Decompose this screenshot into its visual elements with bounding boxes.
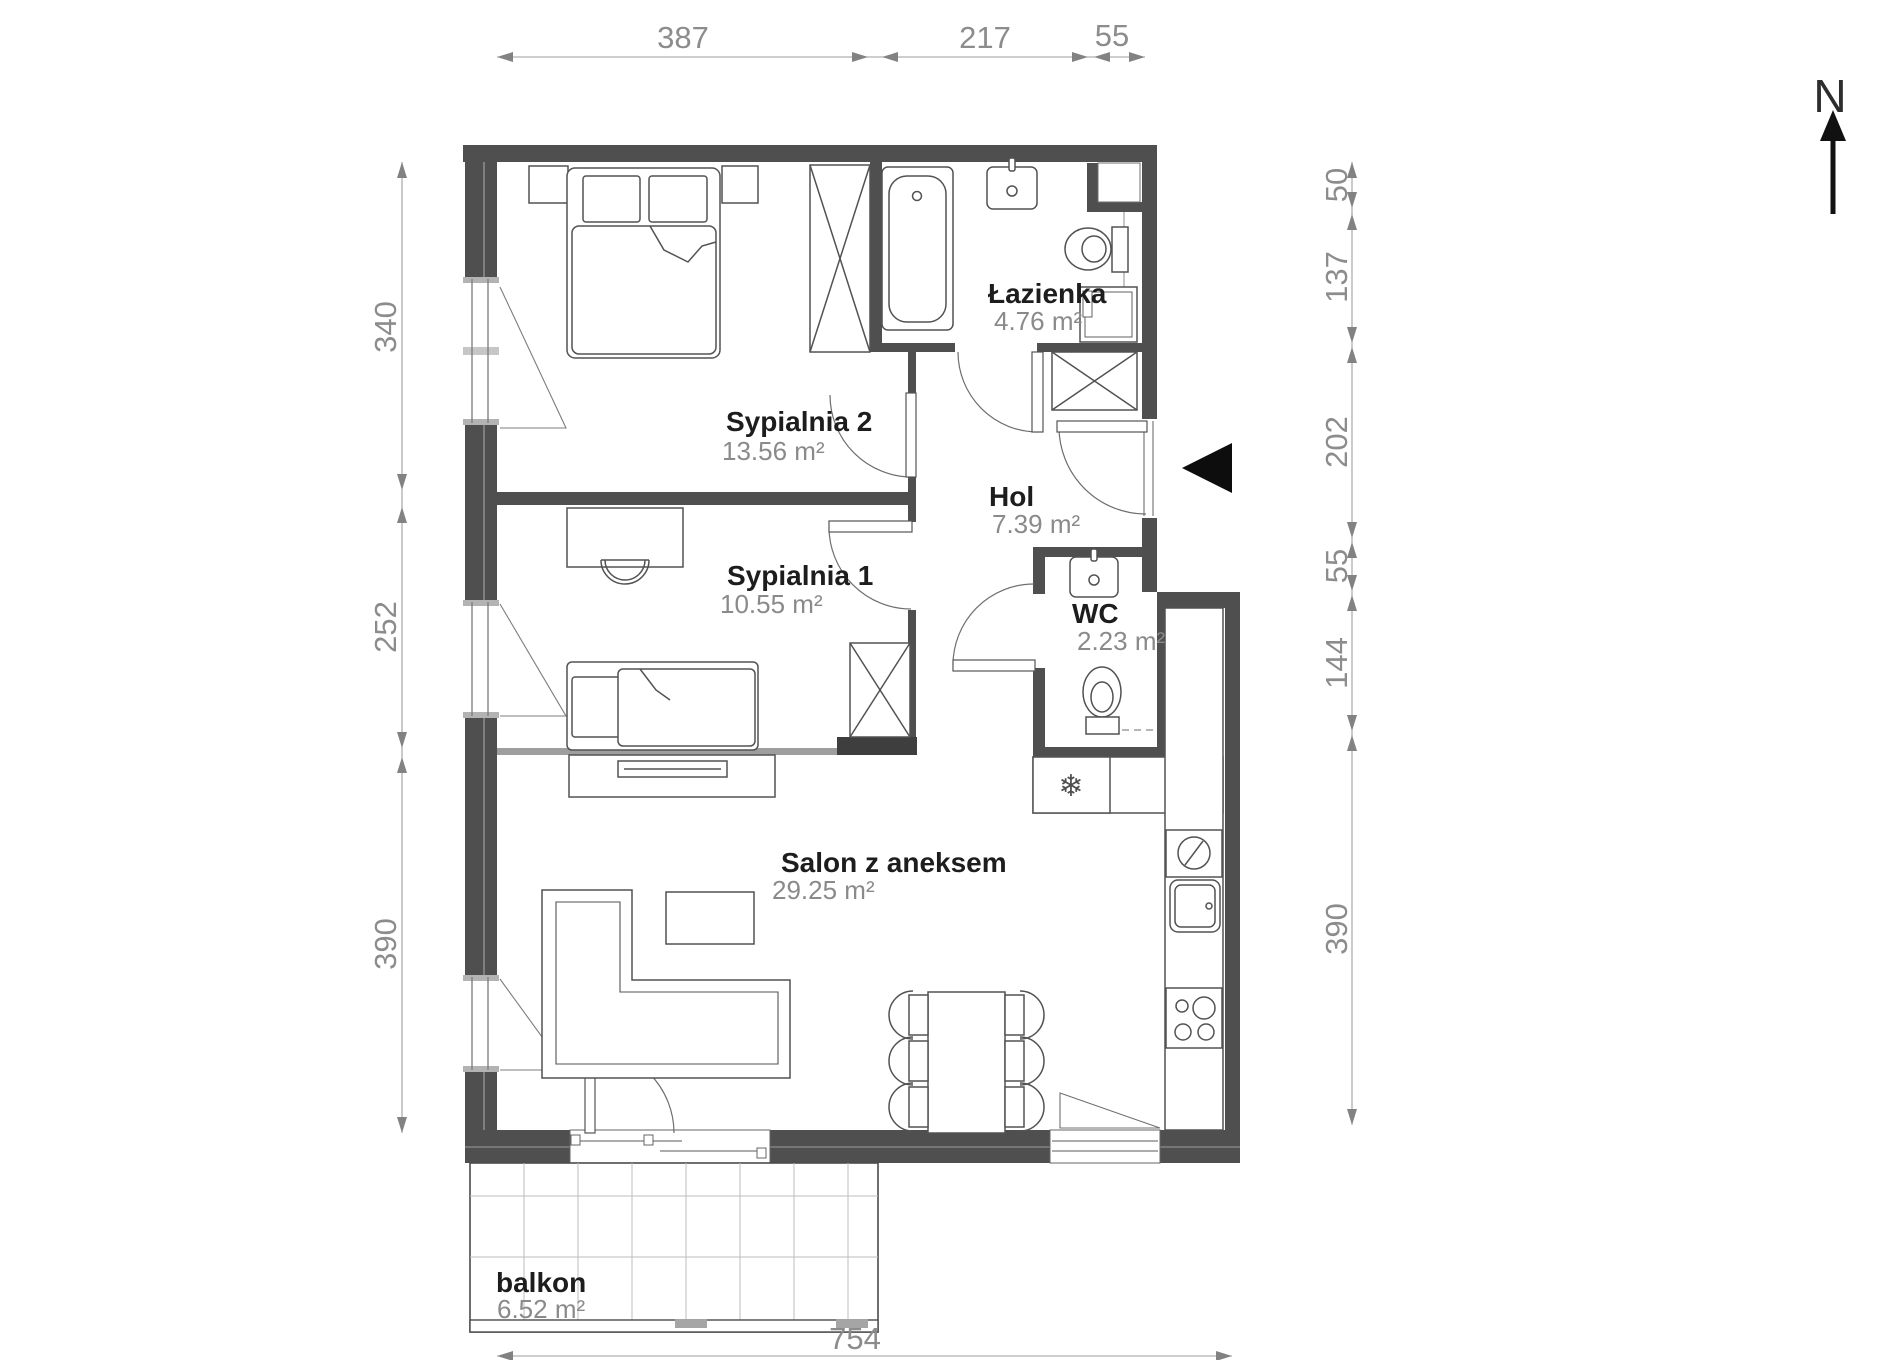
coffee-table (666, 892, 754, 944)
room-area-sypialnia-1: 10.55 m² (720, 589, 823, 619)
sink-drain (1089, 575, 1099, 585)
toilet-tank (1086, 717, 1119, 734)
room-label-salon: Salon z aneksem (781, 847, 1007, 878)
dining-chair (1005, 1037, 1044, 1085)
dining-chair (889, 991, 928, 1039)
room-label-wc: WC (1072, 598, 1119, 629)
room-area-wc: 2.23 m² (1077, 626, 1165, 656)
furniture-salon (542, 755, 1044, 1133)
bathroom-sink (987, 158, 1037, 209)
door-entrance (1057, 419, 1159, 518)
room-label-hol: Hol (989, 481, 1034, 512)
north-indicator: N (1813, 70, 1846, 214)
balcony-door-window (570, 1130, 770, 1163)
wall-shaft-left (1087, 163, 1098, 205)
svg-text:202: 202 (1319, 416, 1354, 468)
wall-bath-bottom-b (1037, 343, 1142, 352)
pillow (583, 176, 640, 222)
room-area-lazienka: 4.76 m² (994, 306, 1082, 336)
door-leaf (1057, 421, 1147, 432)
railing-bracket (675, 1319, 707, 1328)
room-label-sypialnia-1: Sypialnia 1 (727, 560, 873, 591)
wc-toilet (1083, 667, 1121, 734)
snowflake-icon: ❄ (1058, 770, 1083, 803)
wardrobe (810, 165, 870, 352)
door-handle (571, 1135, 580, 1145)
bathtub (882, 167, 953, 330)
door-handle (757, 1148, 766, 1158)
desk (567, 508, 683, 567)
wall-syp2-hol-b (908, 477, 916, 492)
wardrobe (850, 643, 910, 737)
dimension-top: 387 217 55 (497, 18, 1145, 62)
oven-icon (1166, 830, 1222, 877)
north-label: N (1813, 70, 1846, 122)
svg-text:55: 55 (1319, 549, 1354, 583)
nightstand (529, 166, 568, 203)
window-swing-indicator (500, 604, 566, 716)
floor-plan-page: ❄ (0, 0, 1900, 1360)
svg-text:387: 387 (657, 20, 709, 55)
shaft-chamber (1098, 163, 1140, 202)
room-label-sypialnia-2: Sypialnia 2 (726, 406, 872, 437)
toilet (1065, 227, 1128, 272)
room-area-balkon: 6.52 m² (497, 1294, 585, 1324)
svg-text:340: 340 (368, 301, 403, 353)
room-label-lazienka: Łazienka (988, 278, 1107, 309)
bathtub-drain (913, 192, 922, 201)
faucet (1009, 158, 1015, 171)
sink-drain (1206, 903, 1212, 909)
room-area-salon: 29.25 m² (772, 875, 875, 905)
svg-text:137: 137 (1319, 251, 1354, 303)
sink-drain (1007, 186, 1017, 196)
dimension-left: 340 252 390 (368, 162, 407, 1133)
door-handle (644, 1135, 653, 1145)
dimension-right: 50 137 202 55 144 390 (1319, 162, 1357, 1125)
dining-chair (889, 1037, 928, 1085)
window-swing-indicator (500, 287, 566, 428)
wall-right-lower (1225, 592, 1240, 1163)
room-area-sypialnia-2: 13.56 m² (722, 436, 825, 466)
faucet (1091, 549, 1097, 561)
wall-syp2-bath (870, 162, 882, 343)
door-leaf (906, 393, 916, 477)
toilet-tank (1112, 227, 1128, 272)
nightstand (722, 166, 758, 203)
dining-set (889, 991, 1044, 1133)
window-sypialnia-1 (463, 600, 566, 718)
door-wc (953, 584, 1045, 671)
svg-text:390: 390 (1319, 903, 1354, 955)
room-area-hol: 7.39 m² (992, 509, 1080, 539)
wall-right-upper (1142, 145, 1157, 592)
window-kitchen (1050, 1093, 1160, 1163)
door-bathroom (955, 343, 1043, 432)
kitchen: ❄ (1033, 608, 1223, 1130)
wardrobe (1052, 352, 1137, 410)
svg-text:50: 50 (1319, 168, 1354, 202)
hob-icon (1166, 988, 1222, 1048)
door-leaf (953, 660, 1035, 671)
duvet (572, 226, 716, 354)
svg-text:252: 252 (368, 601, 403, 653)
svg-text:217: 217 (959, 20, 1011, 55)
tv-console (569, 755, 775, 797)
wall-wc-bottom (1033, 747, 1165, 757)
wall-top (463, 145, 1157, 162)
wall-shaft-bottom (1087, 202, 1142, 212)
wall-syp2-hol-a (908, 352, 916, 393)
wall-syp1-corner-block (837, 737, 917, 755)
kitchen-sink (1170, 880, 1220, 932)
wall-syp1-hol-a (908, 505, 916, 522)
entrance-arrow-icon (1182, 443, 1232, 493)
floor-plan: ❄ (0, 0, 1900, 1360)
wall-syp-divider (497, 492, 916, 505)
wall-wc-left-b (1033, 668, 1045, 757)
door-leaf (829, 521, 912, 532)
pillow (572, 677, 620, 737)
dining-table (928, 992, 1005, 1133)
duvet (618, 669, 755, 746)
window-sypialnia-2 (463, 277, 566, 428)
svg-text:144: 144 (1319, 637, 1354, 689)
window-swing-indicator (1060, 1093, 1160, 1128)
wall-bath-bottom-a (870, 343, 955, 352)
svg-text:754: 754 (829, 1321, 881, 1356)
dining-chair (889, 1083, 928, 1131)
pillow (649, 176, 707, 222)
svg-text:390: 390 (368, 918, 403, 970)
wall-wc-left-a (1033, 557, 1045, 594)
dining-chair (1005, 1083, 1044, 1131)
door-leaf (1032, 352, 1043, 432)
dining-chair (1005, 991, 1044, 1039)
furniture-sypialnia-1 (567, 508, 910, 750)
furniture-sypialnia-2 (529, 165, 870, 358)
furniture-hol (1052, 352, 1137, 410)
svg-text:55: 55 (1095, 18, 1129, 53)
